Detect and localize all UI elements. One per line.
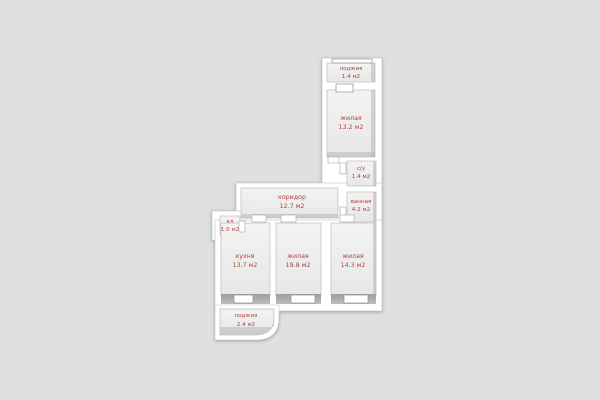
room-name: жилая (287, 253, 309, 260)
shade-living-top-right (371, 90, 375, 157)
door-living-right (340, 215, 354, 222)
room-name: жилая (340, 115, 362, 122)
room-name: лоджия (340, 66, 363, 72)
room-name: жилая (342, 253, 364, 260)
window-living-mid (291, 295, 315, 303)
shade-bathroom-right (373, 192, 376, 222)
room-name: ванная (351, 199, 372, 205)
room-name: коридор (278, 194, 306, 201)
door-wc (340, 163, 346, 174)
door-closet (239, 221, 245, 232)
door-kitchen (252, 215, 266, 222)
room-area: 1.4 м2 (352, 174, 370, 180)
room-area: 1.0 м2 (221, 227, 239, 233)
shade-loggia-top-right (371, 63, 375, 82)
room-area: 4.2 м2 (352, 207, 370, 213)
room-area: 14.3 м2 (341, 262, 366, 269)
door-living-top (328, 157, 339, 163)
room-area: 1.4 м2 (342, 74, 360, 80)
door-living-mid (281, 215, 296, 222)
room-name: лоджия (235, 313, 258, 319)
floorplan-image: лоджия 1.4 м2 жилая 13.2 м2 с/у 1.4 м2 в… (0, 0, 600, 400)
room-name: кл (227, 219, 234, 225)
room-name: с/у (357, 166, 366, 172)
room-area: 12.7 м2 (280, 203, 305, 210)
shade-living-top-bottom (327, 152, 375, 157)
room-area: 13.7 м2 (233, 262, 258, 269)
shade-wc-right (373, 161, 376, 186)
room-area: 13.2 м2 (339, 124, 364, 131)
room-area: 2.4 м2 (237, 322, 255, 328)
window-balcony-door-top (336, 84, 353, 92)
room-area: 19.8 м2 (286, 262, 311, 269)
window-loggia-top (332, 59, 372, 63)
window-kitchen (234, 295, 253, 303)
shade-living-right-right (373, 223, 376, 296)
room-name: кухня (235, 253, 254, 260)
window-living-right (344, 295, 368, 303)
floorplan-canvas: лоджия 1.4 м2 жилая 13.2 м2 с/у 1.4 м2 в… (0, 0, 600, 400)
